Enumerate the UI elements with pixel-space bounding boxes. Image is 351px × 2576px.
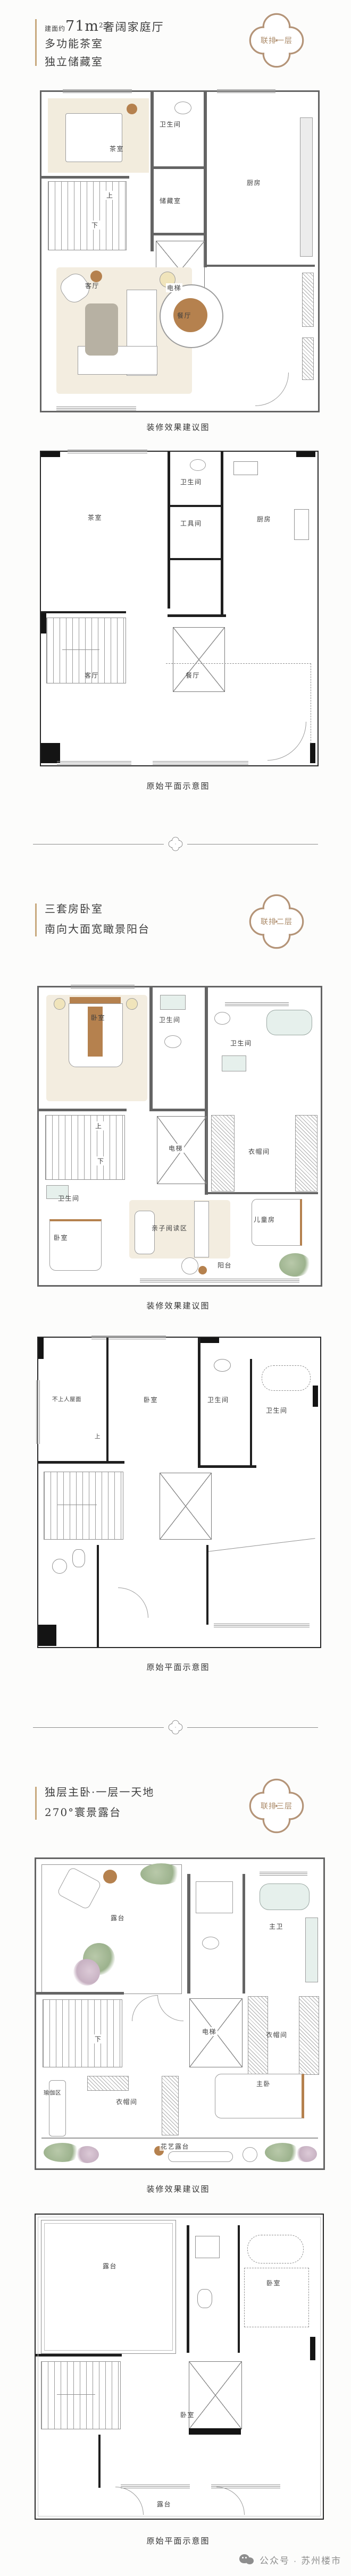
- room-label-reading: 亲子阅读区: [152, 1223, 188, 1232]
- wall: [198, 1465, 256, 1468]
- badge-floor-2: 联排二层: [248, 893, 305, 950]
- wall: [168, 452, 170, 609]
- divider-line: [187, 1727, 318, 1728]
- wechat-eye: [245, 2557, 247, 2558]
- nightstand-icon: [126, 998, 138, 1010]
- entry-door-arc: [268, 722, 306, 761]
- side-table-icon: [90, 271, 102, 282]
- room-label-bedroom-b: 卧室: [180, 2410, 195, 2419]
- staircase: [44, 1472, 123, 1540]
- wardrobe: [299, 1996, 319, 2075]
- window: [153, 761, 248, 765]
- wall: [97, 1545, 99, 1647]
- kitchen-counter: [300, 117, 313, 257]
- toilet-icon: [164, 1035, 181, 1048]
- double-door-arc: [157, 1995, 183, 2021]
- room-label-tea: 茶室: [110, 144, 124, 153]
- section1-headline: 建面约71m2奢阔家庭厅: [45, 18, 164, 35]
- wechat-eye: [242, 2557, 244, 2558]
- plant: [73, 1959, 100, 1986]
- sink-icon: [160, 995, 186, 1010]
- room-label-lift: 电梯: [166, 283, 182, 292]
- room-label-kitchen: 厨房: [247, 178, 261, 187]
- wardrobe: [87, 2076, 129, 2091]
- room-label-tea: 茶室: [88, 513, 102, 522]
- bathtub-icon: [260, 1884, 310, 1910]
- room-label-master: 主卧: [256, 2079, 271, 2088]
- section1-feature-1: 多功能茶室: [45, 35, 103, 50]
- window: [217, 89, 275, 93]
- window: [71, 985, 135, 989]
- plant: [265, 2143, 300, 2162]
- window: [91, 1336, 166, 1339]
- plant: [76, 2146, 99, 2163]
- section3-feature-1: 独层主卧·一层一天地: [45, 1784, 154, 1799]
- badge-floor-3: 联排三层: [248, 1777, 305, 1835]
- wall: [39, 1109, 127, 1111]
- balcony-chair-icon: [181, 1257, 198, 1274]
- bed-headboard: [70, 997, 121, 1003]
- room-label-cloak-b: 衣帽间: [116, 2097, 138, 2106]
- stairs-up-label: 上: [105, 191, 115, 200]
- window: [140, 1279, 299, 1282]
- caption-original: 原始平面示意图: [37, 1661, 319, 1673]
- wall-pier: [310, 743, 315, 763]
- roof-slope-line: [207, 1538, 315, 1552]
- toilet-icon: [214, 1012, 230, 1025]
- sink-icon: [233, 461, 258, 475]
- chaise-icon: [135, 1211, 155, 1254]
- headline-prefix: 建面约: [45, 25, 65, 32]
- cabinet: [302, 337, 314, 380]
- wall: [208, 1192, 318, 1194]
- wall: [207, 265, 315, 267]
- wall: [41, 611, 126, 613]
- room-label-terrace: 露台: [103, 2261, 117, 2270]
- terrace-chair-icon: [243, 2147, 257, 2162]
- room-label-cloak: 衣帽间: [266, 2030, 288, 2039]
- wardrobe: [248, 1996, 268, 2075]
- room-label-storage: 储藏室: [160, 196, 181, 205]
- room-label-bath-b: 卫生间: [266, 1406, 288, 1415]
- room-label-bedroom-a: 卧室: [265, 2278, 282, 2287]
- coffee-table: [85, 303, 118, 356]
- plan-floor2-original: 不上人屋面 卧室 卫生间 卫生间 上: [37, 1337, 321, 1648]
- cabinet: [302, 273, 314, 327]
- toilet-icon: [190, 459, 206, 471]
- wall: [151, 166, 204, 169]
- entry-door-arc: [255, 373, 289, 406]
- bed-icon: [49, 1219, 102, 1271]
- room-label-terrace-b: 露台: [157, 2499, 171, 2509]
- stairs-down-label: 下: [94, 2034, 103, 2043]
- room-label-living: 客厅: [85, 281, 99, 290]
- accent-bar: [35, 19, 37, 66]
- plant: [140, 1863, 182, 1885]
- window: [57, 761, 131, 765]
- wall-pier: [41, 743, 60, 763]
- accent-bar: [35, 903, 37, 936]
- balcony-table-icon: [198, 1266, 207, 1274]
- window: [214, 1624, 310, 1627]
- headline-suffix: 奢阔家庭厅: [103, 21, 164, 33]
- quatrefoil-icon: [168, 1720, 183, 1735]
- staircase: [43, 1999, 122, 2067]
- room-label-bath: 卫生间: [160, 120, 181, 129]
- room-label-bath-a: 卫生间: [207, 1395, 229, 1404]
- window: [36, 1380, 40, 1444]
- terrace-railing-line: [38, 2217, 321, 2516]
- window: [56, 407, 136, 410]
- plan-floor3-decorated: 露台 主卫 下 电梯 衣帽间 瑜伽区 衣帽间 主卧: [35, 1857, 325, 2170]
- room-label-kids: 儿童房: [254, 1215, 275, 1224]
- room-label-yoga: 瑜伽区: [44, 2089, 61, 2097]
- plan-floor2-decorated: 卧室 卫生间 卫生间 上 下 电梯 衣帽间 卫生间 卧室 亲子阅读区 儿童房: [37, 986, 322, 1287]
- wall: [168, 558, 223, 560]
- double-sink: [305, 1918, 318, 1982]
- window: [68, 450, 147, 453]
- window: [225, 1002, 289, 1006]
- stairs-up-label: 上: [95, 1432, 101, 1440]
- sink-icon: [214, 1359, 231, 1372]
- plan-floor3-original: 露台 卧室 卧室 露台: [35, 2214, 324, 2520]
- bathtub-icon: [266, 1010, 312, 1035]
- wall-pier: [313, 1386, 318, 1407]
- wall-pier: [198, 1338, 219, 1343]
- staircase: [45, 1115, 125, 1180]
- staircase: [48, 181, 127, 250]
- wall-pier: [38, 1338, 44, 1359]
- wall: [198, 1338, 200, 1468]
- footer-label: 公众号 · 苏州楼市: [260, 2553, 341, 2566]
- plant: [279, 1253, 311, 1277]
- headline-area: 71m: [65, 18, 99, 35]
- headline-sup: 2: [99, 22, 103, 29]
- sink-icon: [52, 1559, 67, 1574]
- toilet-icon: [174, 102, 191, 114]
- room-label-bath: 卫生间: [180, 477, 202, 486]
- plan-floor1-original: 茶室 卫生间 工具间 厨房 客厅 餐厅: [40, 451, 319, 766]
- stairs-arrow-line: [62, 649, 99, 650]
- room-label-tool: 工具间: [180, 519, 202, 528]
- stairs-down-label: 下: [96, 1156, 106, 1165]
- room-label-bedroom: 卧室: [144, 1395, 158, 1404]
- wall-pier: [296, 452, 315, 457]
- wall-pier: [38, 1625, 56, 1646]
- terrace-edge: [41, 2138, 318, 2139]
- room-label-bath-b: 卫生间: [230, 1038, 252, 1048]
- caption-decorated: 装修效果建议图: [40, 421, 316, 433]
- stool-icon: [127, 104, 137, 114]
- sink-icon: [222, 1055, 246, 1071]
- room-label-roof: 不上人屋面: [52, 1395, 81, 1403]
- caption-original: 原始平面示意图: [35, 2535, 322, 2546]
- wardrobe: [162, 2076, 179, 2135]
- wall: [149, 1109, 208, 1111]
- room-label-living: 客厅: [85, 671, 99, 680]
- elevator-shaft: [160, 1473, 212, 1540]
- room-label-dining: 餐厅: [186, 671, 200, 680]
- divider-line: [33, 1727, 164, 1728]
- window: [260, 1872, 307, 1876]
- wall: [221, 452, 223, 616]
- wall: [41, 176, 129, 179]
- wall: [206, 1545, 208, 1625]
- badge-label: 联排三层: [248, 1777, 305, 1835]
- section3-feature-2: 270°寰景露台: [45, 1804, 121, 1819]
- caption-original: 原始平面示意图: [40, 780, 316, 791]
- room-label-lift: 电梯: [201, 2027, 218, 2036]
- shower-icon: [196, 1881, 233, 1913]
- plan-floor1-decorated: 茶室 卫生间 储藏室 厨房 上 下 电梯 客厅 餐厅: [40, 90, 320, 412]
- stairs-up-label: 上: [94, 1121, 104, 1130]
- room-label-bedroom-b: 卧室: [54, 1233, 68, 1242]
- wechat-icon: [239, 2554, 255, 2567]
- wall-pier: [41, 452, 60, 457]
- terrace-table-icon: [103, 1870, 117, 1884]
- toilet-icon: [202, 1937, 219, 1949]
- stairs-arrow-line: [57, 1505, 97, 1505]
- nightstand-icon: [54, 998, 65, 1010]
- wechat-bubble-small: [246, 2557, 254, 2564]
- wall: [187, 1874, 190, 1994]
- section1-feature-2: 独立储藏室: [45, 53, 103, 69]
- wall: [151, 233, 207, 235]
- plant: [296, 2146, 317, 2162]
- desk-icon: [194, 1201, 209, 1257]
- double-door-arc: [132, 1995, 158, 2021]
- window: [63, 89, 132, 93]
- wall: [243, 1874, 245, 1994]
- tea-table: [65, 113, 122, 162]
- wardrobe: [295, 1115, 317, 1192]
- caption-decorated: 装修效果建议图: [35, 2183, 322, 2194]
- accent-bar: [35, 1787, 37, 1820]
- divider-line: [33, 844, 164, 844]
- wall: [106, 1338, 108, 1461]
- section2-feature-2: 南向大面宽瞰景阳台: [45, 920, 150, 936]
- wall: [168, 505, 223, 507]
- room-label-bath-a: 卫生间: [159, 1015, 181, 1024]
- room-label-cloak: 衣帽间: [248, 1147, 270, 1156]
- door-arc: [118, 1587, 148, 1618]
- badge-label: 联排一层: [248, 12, 305, 69]
- wall: [250, 1359, 252, 1468]
- room-label-dining: 餐厅: [177, 311, 191, 320]
- section2-feature-1: 三套房卧室: [45, 900, 103, 916]
- stairs-down-label: 下: [90, 221, 100, 230]
- toilet-icon: [72, 1549, 85, 1567]
- caption-decorated: 装修效果建议图: [37, 1300, 319, 1311]
- wall: [149, 987, 153, 1110]
- bathtub-dashed: [262, 1365, 311, 1391]
- room-label-terrace: 露台: [111, 1913, 125, 1922]
- room-label-lift: 电梯: [168, 1144, 184, 1153]
- divider-line: [187, 844, 318, 844]
- wall-pier: [41, 611, 46, 634]
- wall: [168, 614, 226, 617]
- floorplan-poster: 建面约71m2奢阔家庭厅 多功能茶室 独立储藏室 联排一层 茶室 卫生间 储藏室…: [0, 0, 351, 2576]
- badge-label: 联排二层: [248, 893, 305, 950]
- room-label-bedroom: 卧室: [91, 1013, 105, 1022]
- wall: [36, 1992, 124, 1995]
- wall: [151, 92, 154, 251]
- quatrefoil-icon: [168, 837, 183, 851]
- room-label-balcony: 阳台: [218, 1261, 232, 1270]
- bench-icon: [168, 2151, 233, 2162]
- wardrobe: [211, 1115, 235, 1192]
- room-label-kitchen: 厨房: [257, 514, 271, 523]
- room-label-master-bath: 主卫: [269, 1922, 283, 1931]
- badge-floor-1: 联排一层: [248, 12, 305, 69]
- room-label-bath-c: 卫生间: [58, 1194, 80, 1203]
- wall: [38, 1461, 124, 1464]
- stove-icon: [294, 509, 309, 540]
- room-label-flower: 花艺露台: [160, 2142, 190, 2151]
